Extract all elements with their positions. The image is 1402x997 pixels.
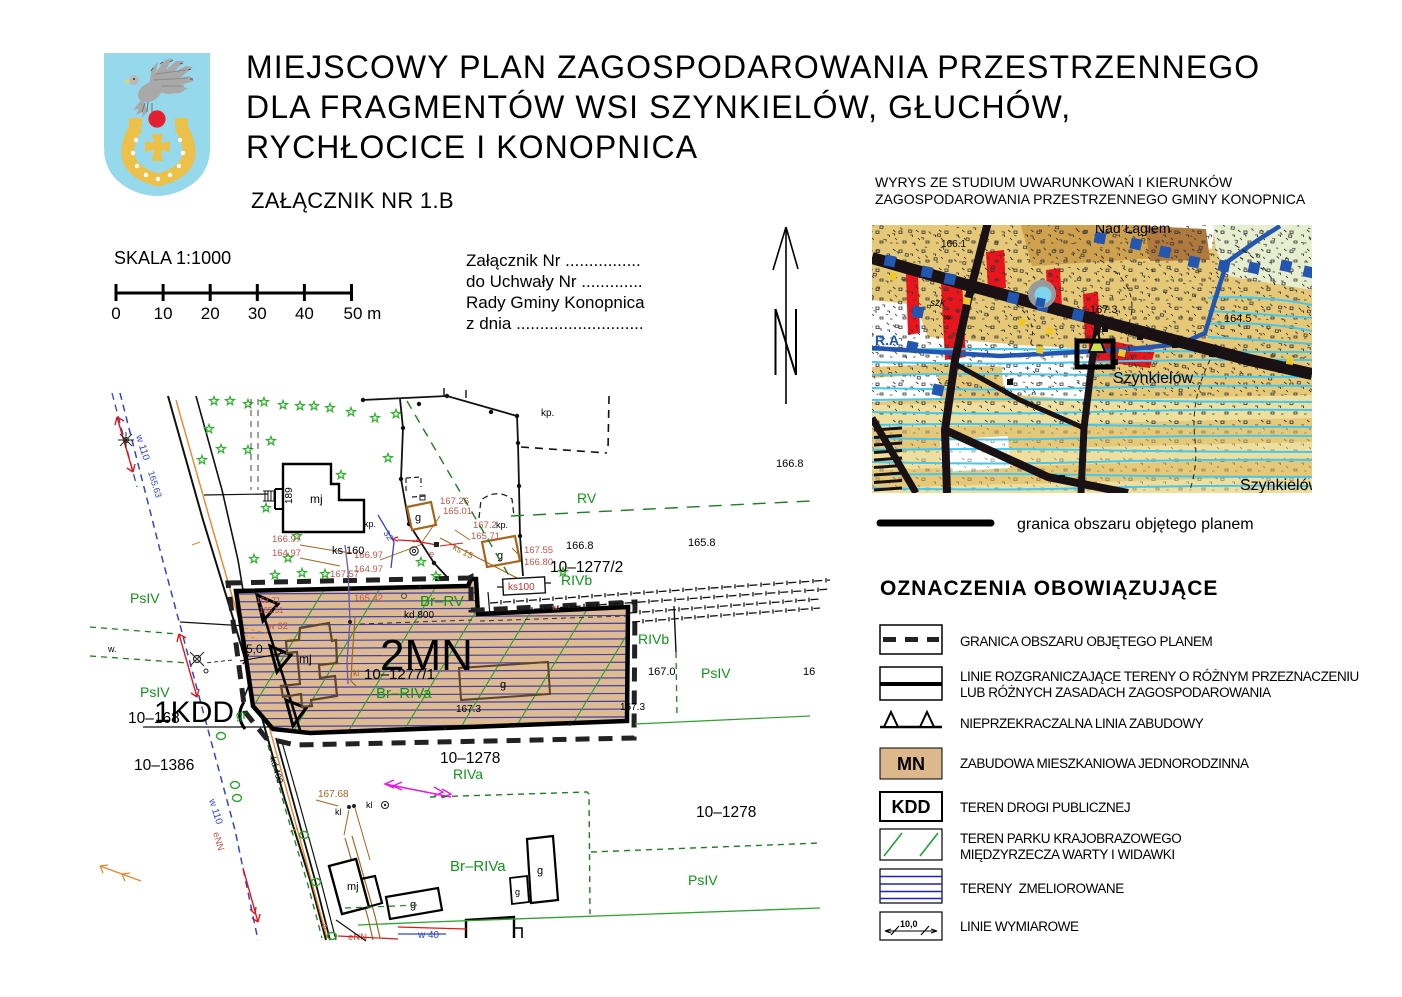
svg-text:GRANICA OBSZARU OBJĘTEGO PLANE: GRANICA OBSZARU OBJĘTEGO PLANEM xyxy=(960,634,1213,649)
svg-text:do Uchwały Nr .............: do Uchwały Nr ............. xyxy=(466,272,643,291)
svg-text:50 m: 50 m xyxy=(344,304,382,323)
svg-text:Załącznik Nr ................: Załącznik Nr ................ xyxy=(466,251,641,270)
svg-text:ZAŁĄCZNIK NR 1.B: ZAŁĄCZNIK NR 1.B xyxy=(251,188,454,213)
svg-text:w 110: w 110 xyxy=(206,797,225,826)
svg-text:10–1277/1: 10–1277/1 xyxy=(364,666,435,683)
svg-text:LUB RÓŻNYCH ZASADACH ZAGOSPODA: LUB RÓŻNYCH ZASADACH ZAGOSPODAROWANIA xyxy=(960,685,1271,700)
svg-text:eNN: eNN xyxy=(210,831,226,852)
svg-text:mj: mj xyxy=(310,492,323,506)
svg-text:165.51: 165.51 xyxy=(259,606,284,615)
svg-text:mj: mj xyxy=(299,652,312,666)
svg-text:LINIE WYMIAROWE: LINIE WYMIAROWE xyxy=(960,919,1079,934)
svg-text:z dnia .......................: z dnia ........................... xyxy=(466,314,644,333)
svg-text:10: 10 xyxy=(154,304,173,323)
svg-text:167.3: 167.3 xyxy=(1090,304,1118,316)
svg-text:szk: szk xyxy=(930,298,946,309)
svg-text:Rady Gminy Konopnica: Rady Gminy Konopnica xyxy=(466,293,645,312)
svg-text:Br–RIVa: Br–RIVa xyxy=(376,685,432,702)
svg-text:MN: MN xyxy=(897,754,925,774)
svg-text:kl: kl xyxy=(353,668,360,678)
svg-text:16: 16 xyxy=(803,666,815,678)
svg-text:kp.: kp. xyxy=(364,519,376,529)
svg-text:w: w xyxy=(944,312,951,322)
svg-text:ZABUDOWA MIESZKANIOWA JEDNOROD: ZABUDOWA MIESZKANIOWA JEDNORODZINNA xyxy=(960,756,1249,771)
svg-text:30: 30 xyxy=(248,304,267,323)
svg-text:165.42: 165.42 xyxy=(354,593,383,604)
svg-text:TERENY ZMELIOROWANE: TERENY ZMELIOROWANE xyxy=(960,881,1124,896)
svg-text:40: 40 xyxy=(295,304,314,323)
svg-text:166.8: 166.8 xyxy=(566,540,594,552)
svg-text:10–1386: 10–1386 xyxy=(134,757,194,774)
svg-text:kl: kl xyxy=(366,800,373,810)
svg-text:0: 0 xyxy=(111,304,120,323)
svg-text:RIVb: RIVb xyxy=(561,572,592,588)
svg-text:TEREN DROGI PUBLICZNEJ: TEREN DROGI PUBLICZNEJ xyxy=(960,800,1130,815)
svg-text:MIEJSCOWY PLAN ZAGOSPODAROWANI: MIEJSCOWY PLAN ZAGOSPODAROWANIA PRZESTRZ… xyxy=(246,49,1260,85)
svg-text:167.55: 167.55 xyxy=(524,545,553,556)
svg-text:RIVa: RIVa xyxy=(453,766,483,782)
svg-text:g: g xyxy=(415,512,421,524)
svg-text:KDD: KDD xyxy=(892,797,931,817)
svg-text:PsIV: PsIV xyxy=(701,665,731,681)
svg-text:LINIE ROZGRANICZAJĄCE TERENY O: LINIE ROZGRANICZAJĄCE TERENY O RÓŻNYM PR… xyxy=(960,669,1359,684)
svg-text:167.0: 167.0 xyxy=(648,666,676,678)
svg-text:167.3: 167.3 xyxy=(456,704,481,715)
svg-text:R.A: R.A xyxy=(875,332,899,348)
svg-text:DLA FRAGMENTÓW WSI SZYNKIELÓW,: DLA FRAGMENTÓW WSI SZYNKIELÓW, GŁUCHÓW, xyxy=(246,89,1071,125)
svg-text:TEREN PARKU KRAJOBRAZOWEGO: TEREN PARKU KRAJOBRAZOWEGO xyxy=(960,831,1181,846)
svg-text:g: g xyxy=(500,679,506,691)
svg-text:164.97: 164.97 xyxy=(272,548,301,559)
svg-text:165.63: 165.63 xyxy=(146,470,164,499)
svg-text:ks100: ks100 xyxy=(508,582,535,593)
svg-text:kp.: kp. xyxy=(541,408,554,419)
svg-text:Szynkielów: Szynkielów xyxy=(1240,477,1320,494)
svg-text:e: e xyxy=(429,549,434,560)
svg-text:164.5: 164.5 xyxy=(1224,313,1252,325)
svg-text:g: g xyxy=(537,865,543,877)
svg-text:OZNACZENIA OBOWIĄZUJĄCE: OZNACZENIA OBOWIĄZUJĄCE xyxy=(880,577,1218,600)
svg-text:10–1278: 10–1278 xyxy=(696,804,756,821)
svg-text:w.: w. xyxy=(551,603,560,612)
svg-text:w 110: w 110 xyxy=(133,433,152,462)
svg-text:kd 800: kd 800 xyxy=(404,610,434,621)
svg-text:NIEPRZEKRACZALNA LINIA ZABUDOW: NIEPRZEKRACZALNA LINIA ZABUDOWY xyxy=(960,716,1204,731)
svg-text:RIVb: RIVb xyxy=(638,631,669,647)
svg-text:189: 189 xyxy=(284,487,295,504)
svg-text:Nad Łągiem: Nad Łągiem xyxy=(1095,220,1171,236)
svg-text:161.71: 161.71 xyxy=(256,596,281,605)
svg-text:5,0: 5,0 xyxy=(246,642,263,656)
svg-text:167.3: 167.3 xyxy=(620,702,645,713)
svg-text:PsIV: PsIV xyxy=(688,872,718,888)
svg-text:mj: mj xyxy=(347,881,359,893)
svg-text:ks 160: ks 160 xyxy=(332,545,364,557)
svg-text:166.97: 166.97 xyxy=(272,534,301,545)
svg-text:167.2: 167.2 xyxy=(473,520,497,531)
svg-text:167.57: 167.57 xyxy=(330,569,359,580)
svg-text:MIĘDZYRZECZA WARTY I WIDAWKI: MIĘDZYRZECZA WARTY I WIDAWKI xyxy=(960,847,1175,862)
svg-text:kp.: kp. xyxy=(496,520,508,530)
svg-text:165.71: 165.71 xyxy=(471,531,500,542)
svg-text:PsIV: PsIV xyxy=(130,590,160,606)
svg-text:165.8: 165.8 xyxy=(688,537,716,549)
svg-text:RV: RV xyxy=(577,490,597,506)
svg-text:granica obszaru objętego plane: granica obszaru objętego planem xyxy=(1017,516,1254,533)
svg-text:10–168: 10–168 xyxy=(128,710,180,727)
svg-text:w 32: w 32 xyxy=(267,621,288,632)
svg-text:ZAGOSPODAROWANIA PRZESTRZENNEG: ZAGOSPODAROWANIA PRZESTRZENNEGO GMINY KO… xyxy=(875,191,1306,207)
svg-text:SKALA 1:1000: SKALA 1:1000 xyxy=(114,248,231,268)
svg-text:167.68: 167.68 xyxy=(318,789,349,800)
svg-text:RYCHŁOCICE I KONOPNICA: RYCHŁOCICE I KONOPNICA xyxy=(246,129,698,165)
svg-text:Br–RIVa: Br–RIVa xyxy=(450,858,506,875)
svg-text:WYRYS ZE STUDIUM UWARUNKOWAŃ I: WYRYS ZE STUDIUM UWARUNKOWAŃ I KIERUNKÓW xyxy=(875,174,1233,190)
svg-text:165.01: 165.01 xyxy=(443,506,472,517)
svg-text:gr: gr xyxy=(236,708,247,722)
svg-text:166.80: 166.80 xyxy=(524,557,553,568)
svg-text:g: g xyxy=(515,887,520,897)
svg-text:10–1278: 10–1278 xyxy=(440,750,500,767)
svg-text:ks 15: ks 15 xyxy=(451,542,475,561)
svg-text:kl: kl xyxy=(335,807,342,817)
svg-text:e: e xyxy=(322,921,327,932)
svg-text:166.1: 166.1 xyxy=(941,239,966,250)
svg-text:w 40: w 40 xyxy=(417,930,440,941)
svg-text:166.8: 166.8 xyxy=(776,458,804,470)
svg-text:w.: w. xyxy=(107,644,117,654)
svg-text:Br–RV: Br–RV xyxy=(420,593,464,610)
svg-text:20: 20 xyxy=(201,304,220,323)
svg-text:10,0: 10,0 xyxy=(900,919,918,929)
svg-text:Szynkielów: Szynkielów xyxy=(1113,370,1193,387)
